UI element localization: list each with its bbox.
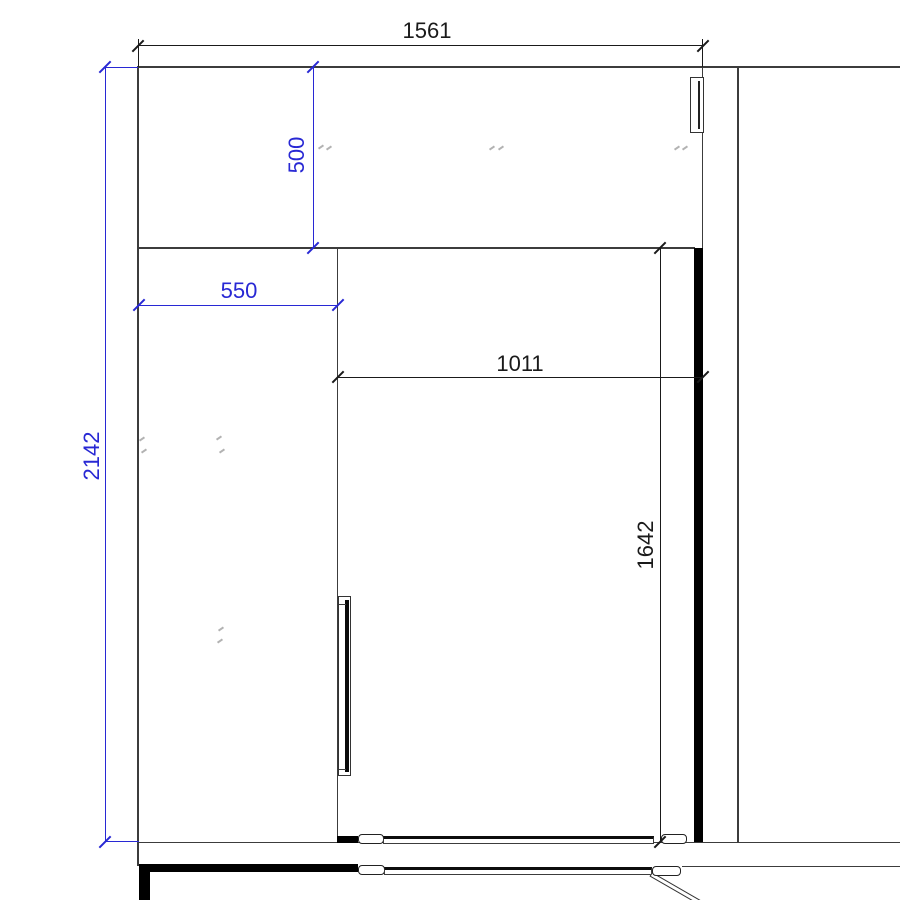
wall-top-line — [138, 66, 900, 68]
track1-door-panel — [383, 836, 654, 844]
hinge-frame-box — [690, 77, 704, 133]
dim-1011-line — [338, 377, 703, 378]
dim-1011-label: 1011 — [496, 353, 543, 375]
dim-550-label: 550 — [221, 280, 258, 302]
track1-wall-segment — [337, 836, 358, 843]
dim-500-line — [313, 67, 314, 248]
dim-550-line — [139, 305, 338, 306]
faint-mark — [219, 448, 225, 453]
dim-1561-label: 1561 — [403, 20, 452, 42]
faint-mark — [326, 145, 332, 150]
wall-left-line — [137, 66, 139, 866]
faint-mark — [141, 448, 147, 453]
faint-mark — [682, 145, 688, 150]
dim-1642-label: 1642 — [635, 521, 657, 570]
faint-mark — [498, 145, 504, 150]
faint-mark — [216, 435, 222, 440]
dim-2142-label: 2142 — [81, 432, 103, 481]
dim-2142-line — [105, 67, 106, 842]
track2-wall-bar-horizontal — [139, 864, 358, 873]
track2-wall-bar-vertical — [139, 864, 150, 900]
faint-mark — [489, 145, 495, 150]
dim-2142-connector-bottom — [105, 841, 139, 842]
door-handle-bar — [345, 600, 350, 772]
hinge-plate — [698, 81, 701, 129]
dim-2142-connector-top — [105, 67, 138, 68]
track2-door-panel — [384, 867, 652, 875]
dim-1642-line — [660, 248, 661, 842]
faint-mark — [318, 144, 324, 149]
partition-horizontal-line — [139, 247, 695, 249]
wall-solid-bar-right — [694, 248, 703, 842]
track1-roller-left — [358, 834, 384, 844]
track2-roller-left — [358, 865, 385, 875]
faint-mark — [139, 436, 145, 441]
dim-500-label: 500 — [286, 137, 308, 174]
open-door-leaf-diagonal — [650, 872, 701, 900]
cad-drawing: 1561 500 550 2142 1011 1642 — [0, 0, 900, 900]
dim-1561-line — [138, 45, 703, 46]
wall-right-outer-line — [737, 66, 739, 843]
door-handle-cap-top — [339, 604, 346, 605]
floor-line-lower — [682, 866, 900, 867]
faint-mark — [217, 638, 223, 643]
faint-mark — [218, 626, 224, 631]
track2-roller-right — [652, 866, 681, 877]
door-handle-cap-bottom — [339, 769, 346, 770]
faint-mark — [674, 145, 680, 150]
